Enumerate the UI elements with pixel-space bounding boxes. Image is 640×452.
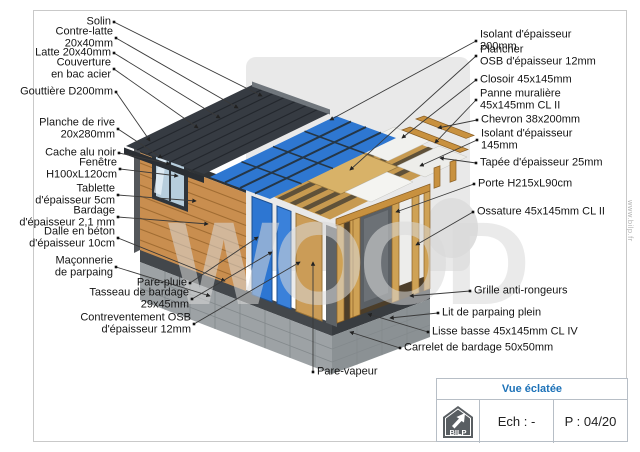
drawing-sheet: WOOD SolinContre-latte20x40mmLatte 20x40… <box>0 0 640 452</box>
scale-value: Ech : - <box>480 400 554 443</box>
website-watermark: www.bilp.fr <box>626 200 635 260</box>
logo-text: BILP <box>449 428 466 437</box>
watermark-text: WOOD <box>168 198 526 330</box>
page-number: P : 04/20 <box>554 400 627 443</box>
title-block: Vue éclatée BILP Ech : - P : 04/20 <box>436 378 628 442</box>
bilp-logo: BILP <box>437 400 480 443</box>
view-title: Vue éclatée <box>437 379 627 400</box>
